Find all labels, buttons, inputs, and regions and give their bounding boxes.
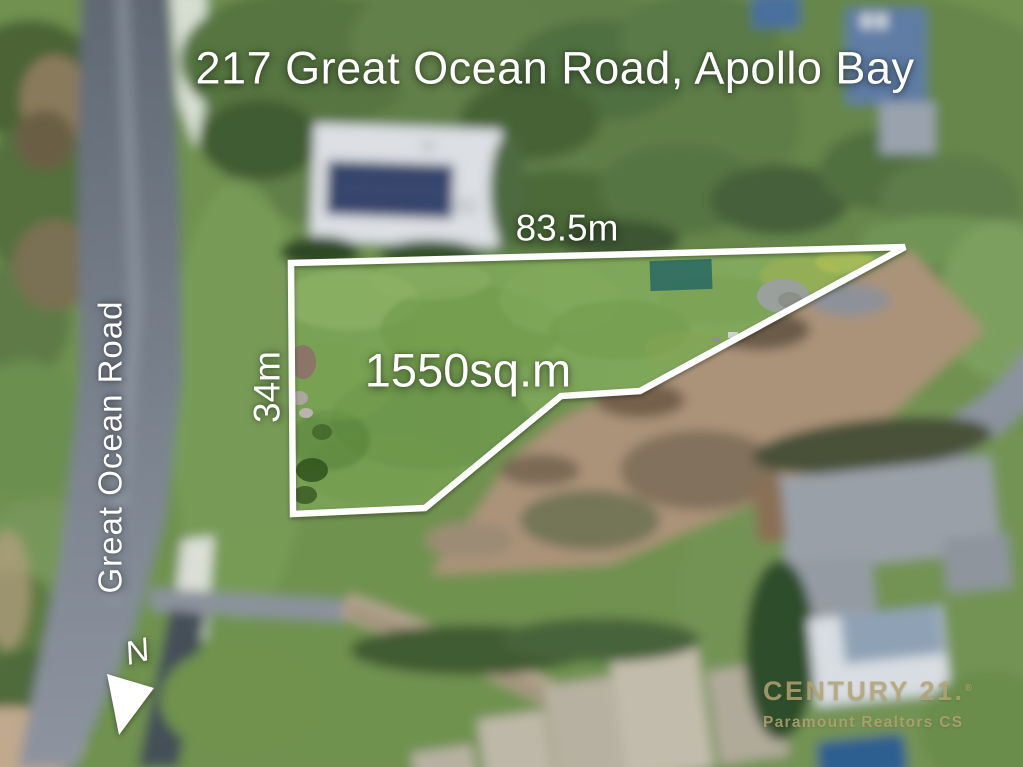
frontage-dimension-label: 83.5m bbox=[516, 210, 619, 247]
registered-mark: ® bbox=[965, 683, 972, 694]
property-title: 217 Great Ocean Road, Apollo Bay bbox=[196, 46, 915, 91]
office-watermark: Paramount Realtors CS bbox=[763, 714, 972, 732]
depth-dimension-label: 34m bbox=[249, 351, 286, 423]
shed-roof bbox=[649, 259, 712, 291]
area-label: 1550sq.m bbox=[365, 347, 571, 394]
solar-house-roof bbox=[310, 123, 502, 247]
small-blue-roof bbox=[752, 0, 800, 28]
brand-watermark-text: CENTURY 21.® bbox=[763, 676, 972, 707]
property-aerial-photo: 217 Great Ocean Road, Apollo Bay 83.5m 3… bbox=[0, 0, 1023, 767]
brand-watermark: CENTURY 21.® Paramount Realtors CS bbox=[763, 676, 972, 732]
road-name-label: Great Ocean Road bbox=[94, 301, 127, 594]
